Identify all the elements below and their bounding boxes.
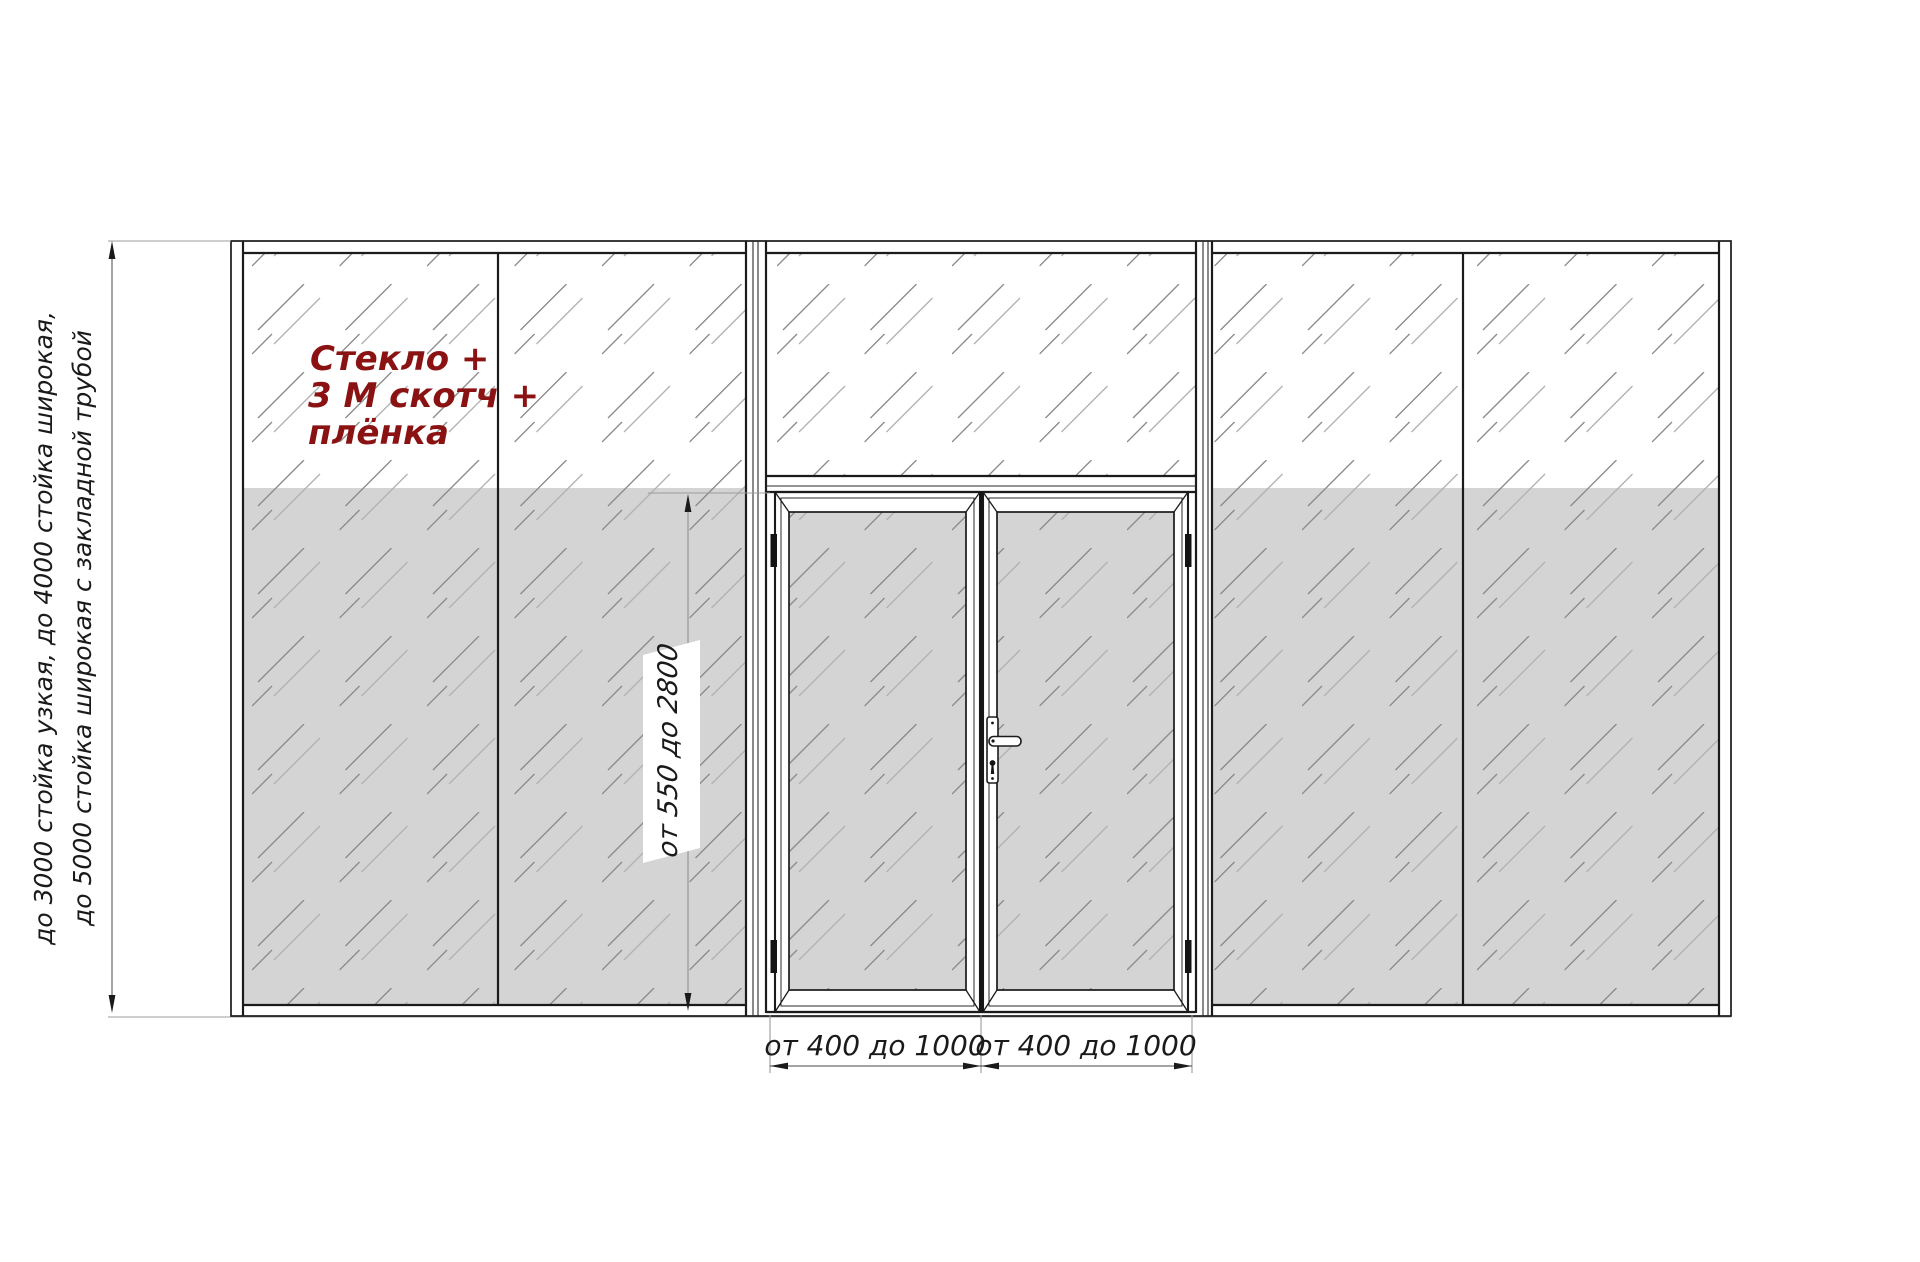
glass-note-line-1: Стекло + (310, 339, 489, 379)
handle-screw (991, 722, 994, 725)
height-dim-label-line-2: до 5000 стойка широкая с закладной трубо… (68, 330, 97, 927)
arrow-left-icon (981, 1063, 999, 1070)
glass-note-line-3: плёнка (308, 413, 449, 453)
hinge-icon (771, 534, 778, 567)
hinge-icon (1185, 940, 1192, 973)
arrow-right-icon (1174, 1063, 1192, 1070)
hinge-icon (1185, 534, 1192, 567)
height-dimension-left: до 3000 стойка узкая, до 4000 стойка шир… (29, 241, 231, 1013)
arrow-down-icon (109, 995, 116, 1013)
glass-hatch (789, 512, 966, 990)
handle-screw (991, 777, 994, 780)
handle-pivot (991, 739, 994, 742)
arrow-up-icon (109, 241, 116, 259)
arrow-left-icon (770, 1063, 788, 1070)
door-meeting-gap (980, 492, 984, 1012)
glass-hatch (766, 253, 1196, 476)
leaf-width-dimensions: от 400 до 1000 от 400 до 1000 (764, 1015, 1196, 1073)
partition-drawing: Стекло + 3 М скотч + плёнка до 3000 стой… (0, 0, 1920, 1262)
arrow-right-icon (963, 1063, 981, 1070)
film-height-label: от 550 до 2800 (653, 641, 684, 860)
hinge-icon (771, 940, 778, 973)
glass-hatch (1212, 253, 1719, 1005)
right-leaf-width-label: от 400 до 1000 (975, 1029, 1196, 1062)
glass-hatch (997, 512, 1174, 990)
glass-note-line-2: 3 М скотч + (308, 376, 539, 416)
left-leaf-width-label: от 400 до 1000 (764, 1029, 985, 1062)
drawing-canvas: Стекло + 3 М скотч + плёнка до 3000 стой… (0, 0, 1920, 1262)
height-dim-label-line-1: до 3000 стойка узкая, до 4000 стойка шир… (29, 311, 58, 946)
